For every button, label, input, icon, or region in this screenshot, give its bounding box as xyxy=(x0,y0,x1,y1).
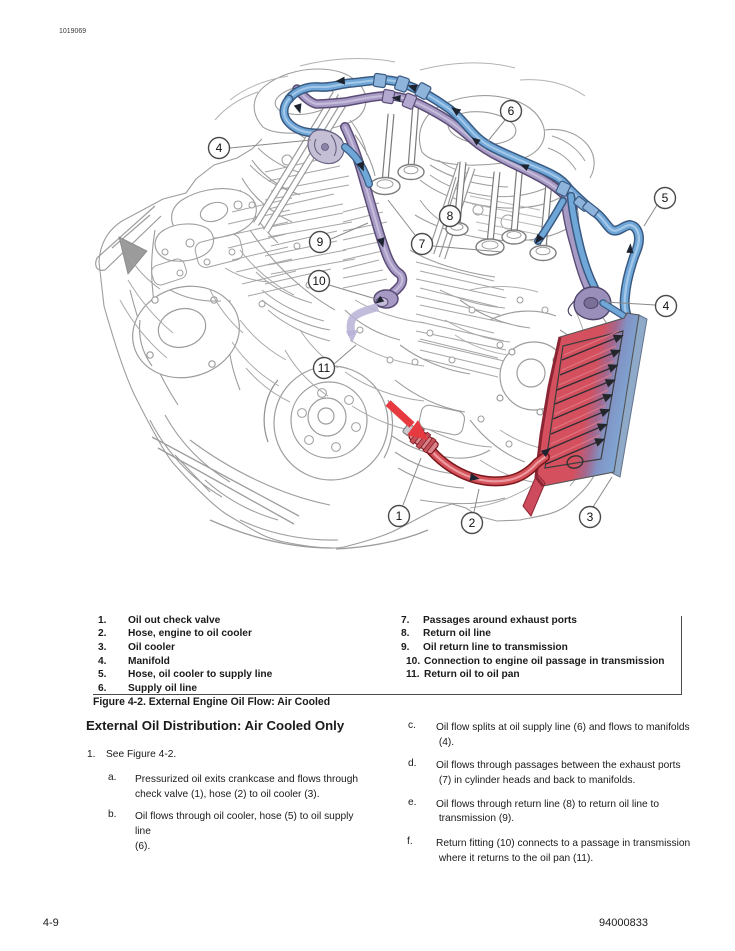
svg-text:4: 4 xyxy=(216,141,223,155)
svg-text:11: 11 xyxy=(318,361,331,375)
svg-text:7: 7 xyxy=(419,237,426,251)
svg-text:8: 8 xyxy=(447,209,454,223)
svg-text:1: 1 xyxy=(396,509,403,523)
svg-text:5: 5 xyxy=(662,191,669,205)
svg-text:10: 10 xyxy=(312,274,326,288)
svg-text:2: 2 xyxy=(469,516,476,530)
svg-text:9: 9 xyxy=(317,235,324,249)
svg-text:6: 6 xyxy=(508,104,515,118)
svg-text:4: 4 xyxy=(663,299,670,313)
svg-text:3: 3 xyxy=(587,510,594,524)
